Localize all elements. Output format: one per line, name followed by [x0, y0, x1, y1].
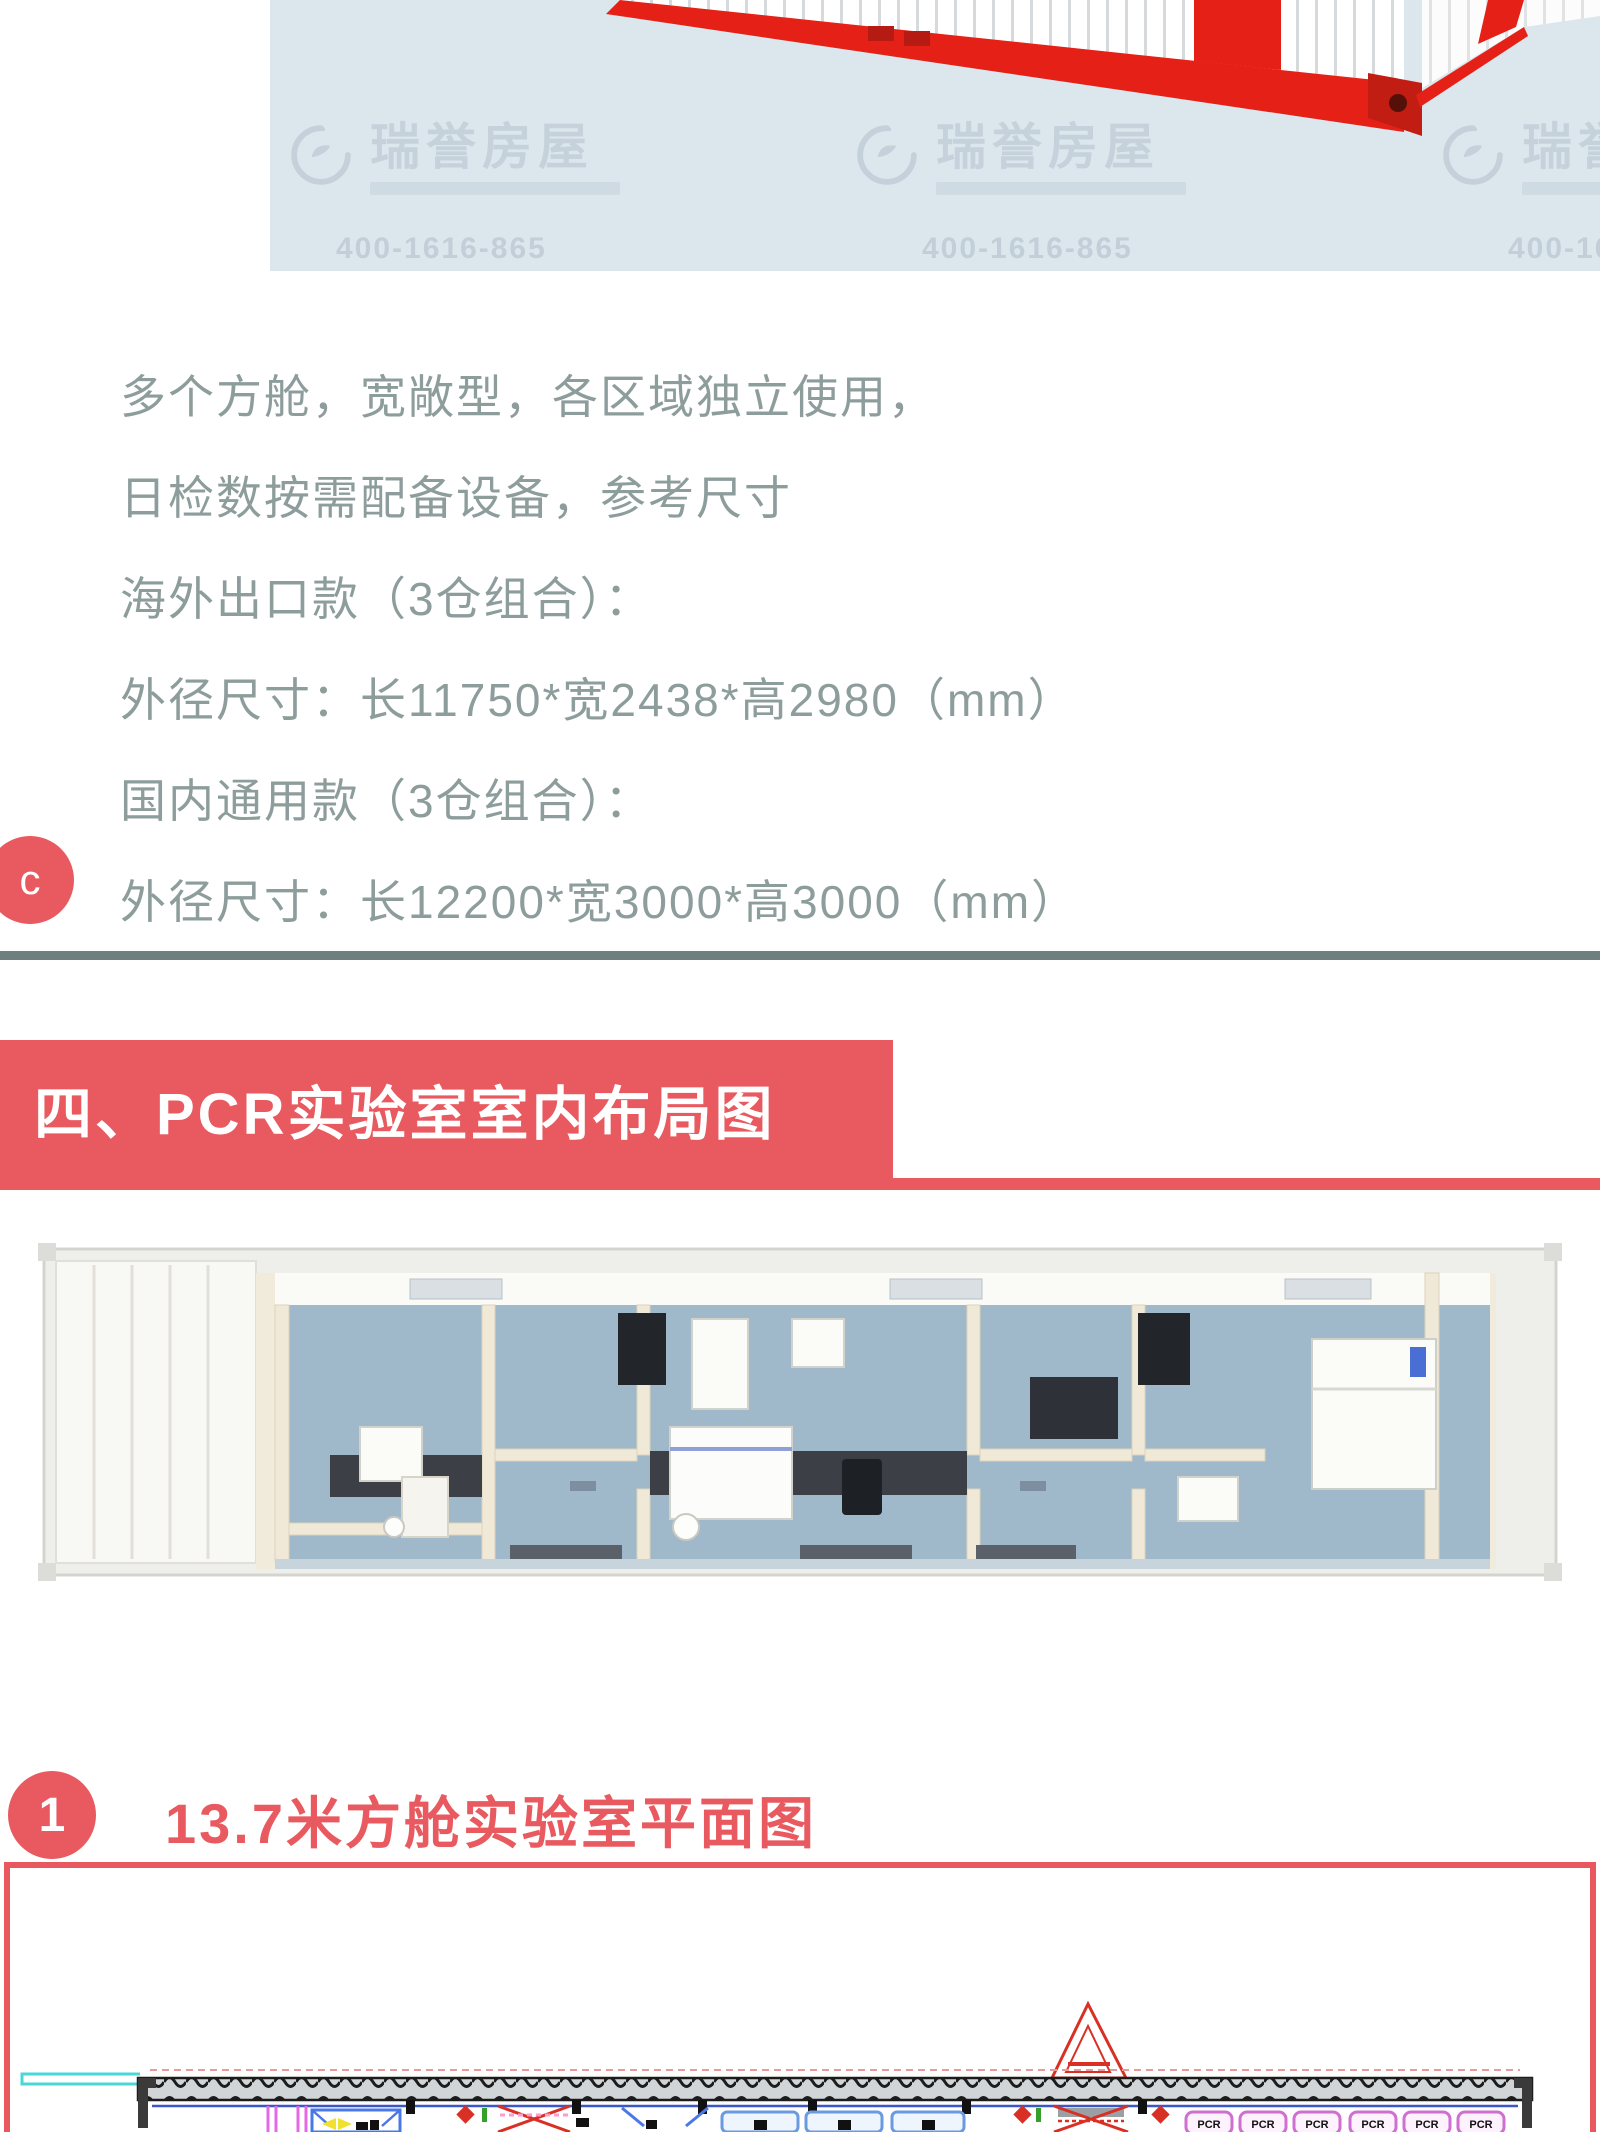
- spec-line: 外径尺寸：长12200*宽3000*高3000（mm）: [0, 852, 1600, 953]
- spec-line: 海外出口款（3仓组合）：: [0, 549, 1600, 650]
- watermark-phone: 400-1616-865: [1508, 232, 1600, 266]
- watermark-brand: 瑞誉房屋: [936, 120, 1186, 174]
- pcr-room-label: PCR: [1469, 2119, 1492, 2131]
- spec-line: 日检数按需配备设备，参考尺寸: [0, 448, 1600, 549]
- watermark-brand: 瑞誉房屋: [1522, 120, 1600, 174]
- lab-interior-render-graphic: [30, 1227, 1570, 1597]
- watermark-phone: 400-1616-865: [336, 232, 547, 266]
- container-photo: 瑞誉房屋 400-1616-865 瑞誉房屋 400-1616-865: [270, 0, 1600, 271]
- watermark-tagline: [370, 182, 620, 195]
- watermark: 瑞誉房屋: [286, 120, 620, 195]
- lab-interior-render: [30, 1227, 1570, 1597]
- brand-logo-icon: [286, 120, 356, 190]
- section-banner-title: 四、PCR实验室室内布局图: [0, 1040, 893, 1190]
- pcr-room-label: PCR: [1305, 2119, 1328, 2131]
- watermark: 瑞誉房屋: [852, 120, 1186, 195]
- section-divider: [0, 951, 1600, 960]
- marker-badge-1: 1: [8, 1771, 96, 1859]
- hero-section: 瑞誉房屋 400-1616-865 瑞誉房屋 400-1616-865: [0, 0, 1600, 271]
- spec-text-block: 多个方舱，宽敞型，各区域独立使用， 日检数按需配备设备，参考尺寸 海外出口款（3…: [0, 271, 1600, 953]
- spec-line: 外径尺寸：长11750*宽2438*高2980（mm）: [0, 650, 1600, 751]
- pcr-room-label: PCR: [1251, 2119, 1274, 2131]
- section-banner-underline: [893, 1178, 1600, 1190]
- pcr-room-label: PCR: [1361, 2119, 1384, 2131]
- watermark: 瑞誉房屋: [1438, 120, 1600, 195]
- watermark-brand: 瑞誉房屋: [370, 120, 620, 174]
- spec-line: 多个方舱，宽敞型，各区域独立使用，: [0, 347, 1600, 448]
- section-banner: 四、PCR实验室室内布局图: [0, 1040, 893, 1190]
- floor-plan-box: PCR PCR PCR PCR PCR PCR: [4, 1862, 1596, 2132]
- brand-logo-icon: [852, 120, 922, 190]
- watermark-phone: 400-1616-865: [922, 232, 1133, 266]
- spec-line: 国内通用款（3仓组合）：: [0, 751, 1600, 852]
- pcr-room-label: PCR: [1415, 2119, 1438, 2131]
- watermark-tagline: [936, 182, 1186, 195]
- floor-plan-graphic: PCR PCR PCR PCR PCR PCR: [10, 1868, 1590, 2132]
- subsection-title: 13.7米方舱实验室平面图: [165, 1779, 817, 1860]
- brand-logo-icon: [1438, 120, 1508, 190]
- watermark-tagline: [1522, 182, 1600, 195]
- pcr-room-label: PCR: [1197, 2119, 1220, 2131]
